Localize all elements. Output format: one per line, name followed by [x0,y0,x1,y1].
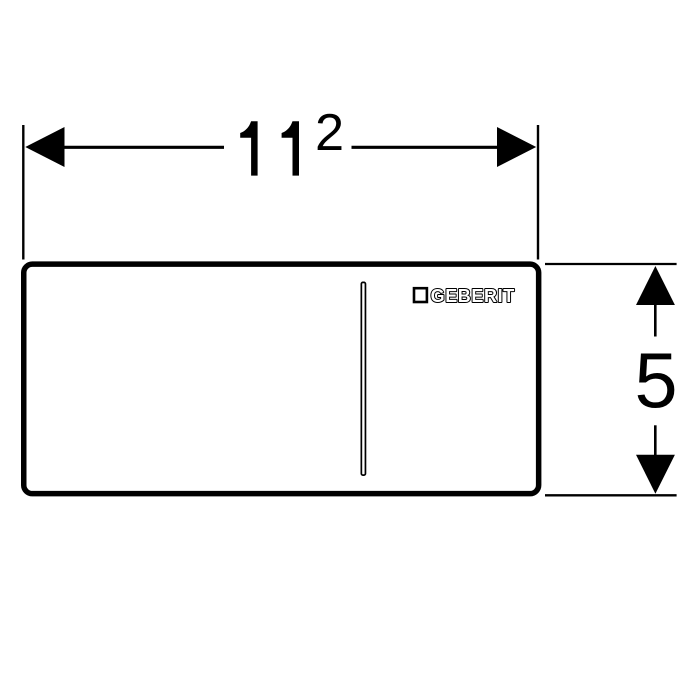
svg-text:2: 2 [315,104,344,162]
svg-text:5: 5 [634,338,677,424]
svg-text:GEBERIT: GEBERIT [431,286,515,306]
